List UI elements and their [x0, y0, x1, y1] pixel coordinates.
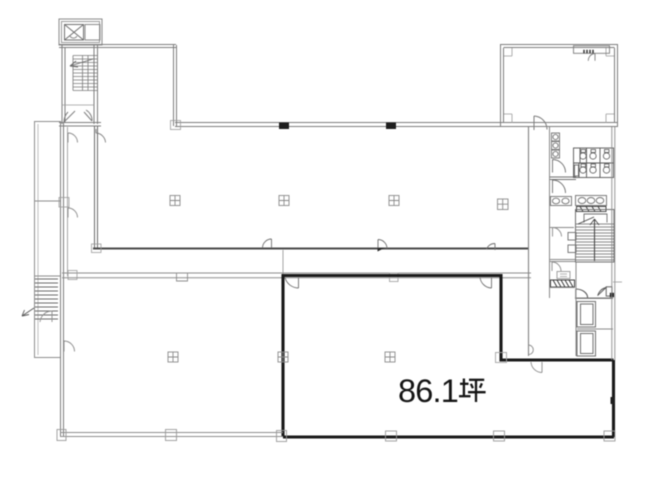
svg-text:86.1: 86.1: [398, 373, 458, 409]
